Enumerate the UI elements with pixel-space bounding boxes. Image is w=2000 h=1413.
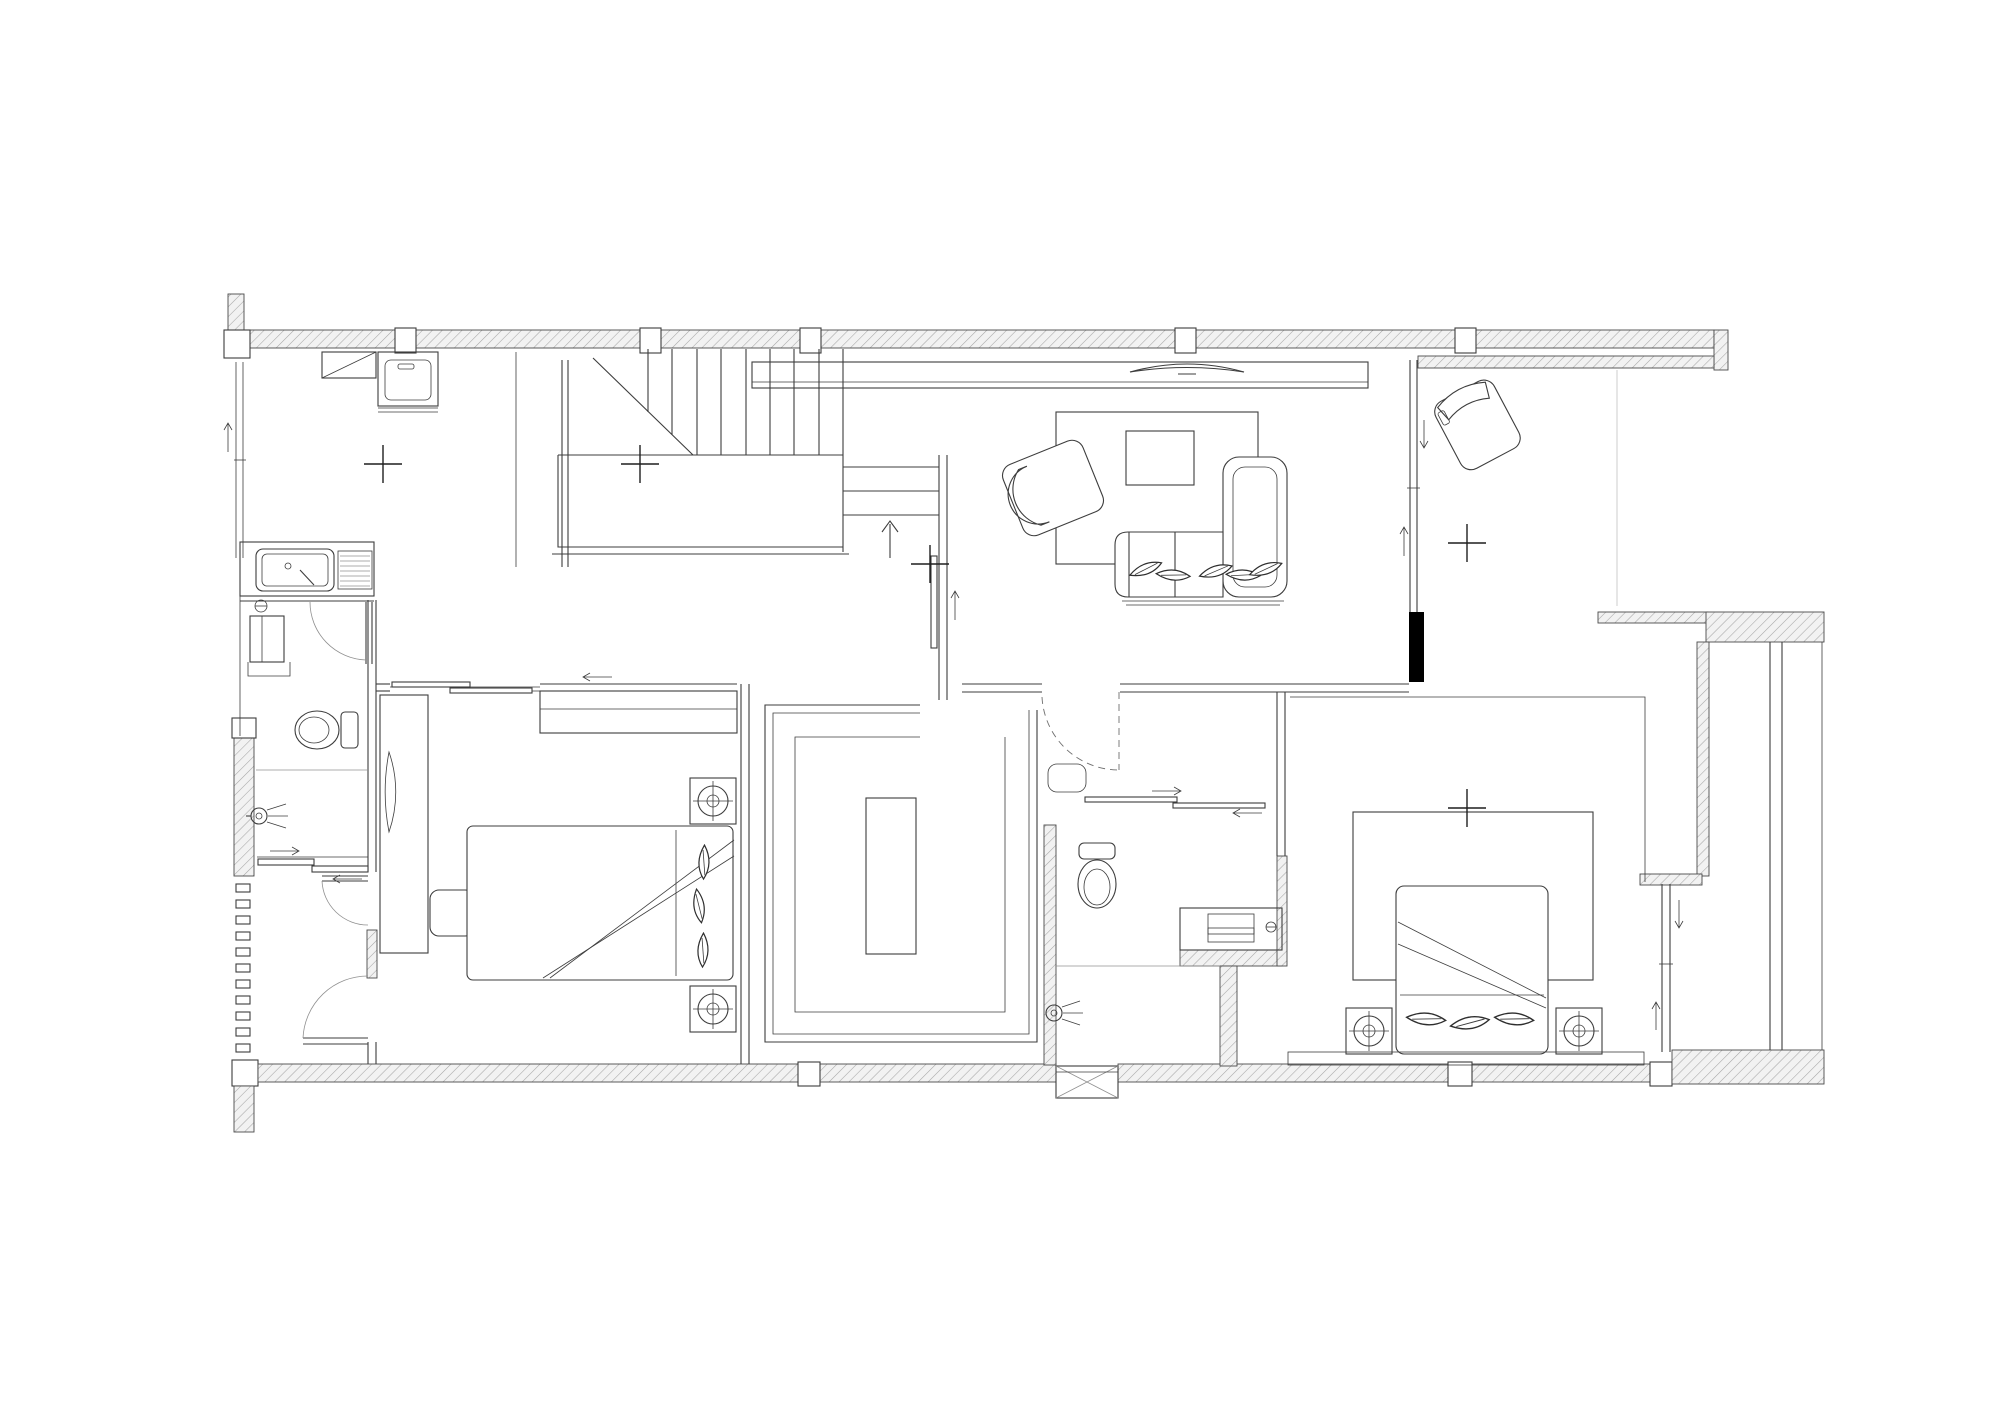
center-mark-icon bbox=[1448, 789, 1486, 827]
drain-icon bbox=[285, 563, 291, 569]
bottom-left-wall-stub bbox=[234, 1086, 254, 1132]
coffee-table bbox=[1126, 431, 1194, 485]
sink-basin bbox=[262, 554, 328, 586]
sliding-door bbox=[257, 847, 368, 883]
column bbox=[798, 1062, 820, 1086]
walk-in-closet bbox=[765, 455, 1037, 1042]
sofa-seat bbox=[1115, 532, 1223, 597]
bathroom2-west-wall bbox=[1044, 825, 1056, 1065]
slide-arrow-icon bbox=[270, 847, 299, 855]
column bbox=[232, 1060, 258, 1086]
exterior-walls bbox=[224, 294, 1824, 1132]
tall-cabinet bbox=[248, 600, 290, 676]
bottom-wall bbox=[1118, 1064, 1448, 1082]
center-mark-icon bbox=[621, 445, 659, 483]
faucet-icon bbox=[300, 570, 314, 585]
swing-door bbox=[303, 976, 368, 1044]
floor-plan-drawing bbox=[0, 0, 2000, 1413]
window-arrow-icon bbox=[1652, 1002, 1660, 1030]
window-terrace-divider bbox=[1400, 360, 1428, 612]
window-arrow-icon bbox=[1400, 527, 1408, 556]
window-bedroom2-east bbox=[1652, 884, 1683, 1052]
stair-break-line bbox=[593, 358, 693, 455]
lounge-chair bbox=[1430, 374, 1525, 474]
nightstand-with-lamp bbox=[690, 778, 736, 824]
column bbox=[1448, 1062, 1472, 1086]
sliding-partition bbox=[1085, 787, 1265, 817]
toilet bbox=[1078, 843, 1116, 908]
left-wall-ladder-pattern bbox=[236, 884, 250, 1052]
window-arrow-icon bbox=[1675, 900, 1683, 928]
window-arrow-icon bbox=[224, 423, 232, 452]
media-console bbox=[752, 362, 1368, 388]
sink-outer bbox=[256, 549, 334, 591]
slide-arrow-icon bbox=[951, 591, 959, 620]
swing-door bbox=[322, 876, 368, 925]
slide-arrow-icon bbox=[1233, 809, 1262, 817]
ac-shaft-box bbox=[1056, 1066, 1118, 1098]
left-wall-cap bbox=[232, 718, 256, 738]
vanity-with-sink bbox=[1180, 908, 1282, 950]
closet-island bbox=[866, 798, 916, 954]
nightstand-with-lamp bbox=[1346, 1008, 1392, 1054]
bottom-wall bbox=[820, 1064, 1056, 1082]
column bbox=[800, 328, 821, 353]
black-column bbox=[1409, 612, 1424, 682]
wardrobe-band bbox=[540, 691, 737, 733]
terrace-parapet bbox=[1418, 356, 1714, 368]
top-wall bbox=[237, 330, 1714, 348]
vanity-wall bbox=[1180, 950, 1282, 966]
bedroom-east bbox=[1288, 697, 1645, 1065]
column bbox=[640, 328, 661, 353]
column bbox=[1455, 328, 1476, 353]
toilet bbox=[295, 711, 358, 749]
stair-up-arrow-icon bbox=[882, 521, 898, 558]
hall-sliding-door bbox=[931, 455, 959, 700]
double-bed bbox=[467, 826, 734, 980]
top-wall-end-cap bbox=[1714, 330, 1728, 370]
left-wall-hatch bbox=[234, 736, 254, 876]
window-arrow-icon bbox=[1420, 420, 1428, 448]
right-wall-block bbox=[1706, 612, 1824, 642]
swing-door bbox=[310, 602, 372, 664]
nightstand-with-lamp bbox=[690, 986, 736, 1032]
bottom-wall bbox=[258, 1064, 798, 1082]
sliding-entry-door bbox=[392, 673, 710, 693]
center-mark-icon bbox=[364, 445, 402, 483]
center-mark-icon bbox=[1448, 524, 1486, 562]
kitchenette bbox=[240, 542, 374, 601]
shower-divider-wall bbox=[1220, 966, 1237, 1066]
top-left-wall-stub bbox=[228, 294, 244, 332]
column bbox=[1175, 328, 1196, 353]
right-wall-vertical bbox=[1697, 642, 1709, 876]
floor-plan-page bbox=[0, 0, 2000, 1413]
armchair bbox=[996, 437, 1107, 541]
column bbox=[1650, 1062, 1672, 1086]
window-sill-east bbox=[1640, 874, 1702, 885]
bottom-wall-thick-east bbox=[1672, 1050, 1824, 1084]
living-room bbox=[752, 362, 1368, 605]
bottom-wall bbox=[1472, 1064, 1650, 1082]
washing-machine bbox=[378, 352, 438, 412]
center-mark-icon bbox=[911, 545, 949, 583]
slide-arrow-icon bbox=[1152, 787, 1181, 795]
center-marks bbox=[364, 445, 1486, 827]
column bbox=[395, 328, 416, 353]
right-wall-band bbox=[1598, 612, 1708, 623]
terrace bbox=[1430, 370, 1617, 606]
bedroom-west bbox=[376, 673, 749, 1064]
slide-arrow-icon bbox=[583, 673, 612, 681]
utility-area bbox=[322, 352, 438, 412]
stair-landing bbox=[558, 455, 843, 547]
window-left bbox=[224, 362, 246, 558]
desk bbox=[380, 695, 428, 953]
monitor-icon bbox=[385, 752, 396, 832]
bathroom-west bbox=[246, 600, 377, 1064]
curved-tv bbox=[1130, 364, 1244, 374]
dashed-swing-door bbox=[1042, 692, 1119, 770]
double-bed bbox=[1396, 886, 1548, 1054]
drainboard bbox=[338, 551, 372, 589]
nightstand-with-lamp bbox=[1556, 1008, 1602, 1054]
column bbox=[224, 330, 250, 358]
wall-shelf bbox=[1048, 764, 1086, 792]
